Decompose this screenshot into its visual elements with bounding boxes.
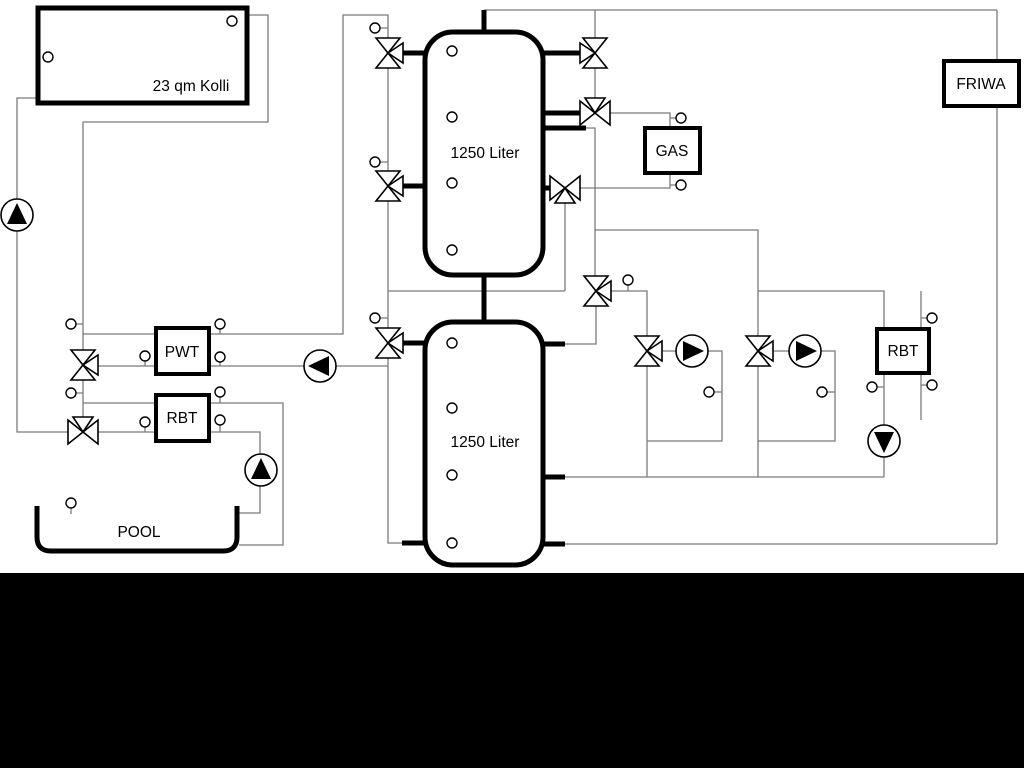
sensor-icon xyxy=(215,415,225,425)
pump-up-icon xyxy=(1,199,33,231)
sensor-icon xyxy=(676,180,686,190)
sensor-icon xyxy=(43,52,53,62)
gas-label: GAS xyxy=(656,143,689,160)
sensor-icon xyxy=(215,352,225,362)
sensor-icon xyxy=(447,538,457,548)
sensor-icon xyxy=(447,112,457,122)
rbt-left-label: RBT xyxy=(167,410,199,427)
sensor-icon xyxy=(704,387,714,397)
sensor-icon xyxy=(370,157,380,167)
pump-right-icon xyxy=(676,335,708,367)
sensor-icon xyxy=(447,245,457,255)
sensor-icon xyxy=(66,498,76,508)
sensor-icon xyxy=(447,338,457,348)
sensor-icon xyxy=(867,382,877,392)
sensor-icon xyxy=(927,313,937,323)
tank-top-label: 1250 Liter xyxy=(451,145,520,162)
rbt-right-label: RBT xyxy=(888,343,920,360)
friwa-label: FRIWA xyxy=(956,76,1006,93)
collector-label: 23 qm Kolli xyxy=(153,78,230,95)
sensor-icon xyxy=(66,319,76,329)
sensor-icon xyxy=(927,380,937,390)
sensor-icon xyxy=(447,178,457,188)
letterbox-bar xyxy=(0,573,1024,768)
sensor-icon xyxy=(370,313,380,323)
sensor-icon xyxy=(215,387,225,397)
sensor-icon xyxy=(215,319,225,329)
hydraulic-schematic: 23 qm Kolli 1250 Liter 1250 Liter GAS PW… xyxy=(0,0,1024,768)
sensor-icon xyxy=(227,16,237,26)
pump-down-icon xyxy=(868,425,900,457)
pool-label: POOL xyxy=(117,524,160,541)
sensor-icon xyxy=(817,387,827,397)
sensor-icon xyxy=(676,113,686,123)
tank-bottom-label: 1250 Liter xyxy=(451,434,520,451)
sensor-icon xyxy=(623,275,633,285)
sensor-icon xyxy=(447,46,457,56)
pump-right-icon xyxy=(789,335,821,367)
pump-left-icon xyxy=(304,350,336,382)
sensor-icon xyxy=(66,388,76,398)
pump-up-icon xyxy=(245,454,277,486)
sensor-icon xyxy=(447,470,457,480)
sensor-icon xyxy=(447,403,457,413)
sensor-icon xyxy=(140,417,150,427)
sensor-icon xyxy=(140,351,150,361)
pwt-label: PWT xyxy=(165,344,200,361)
sensor-icon xyxy=(370,23,380,33)
